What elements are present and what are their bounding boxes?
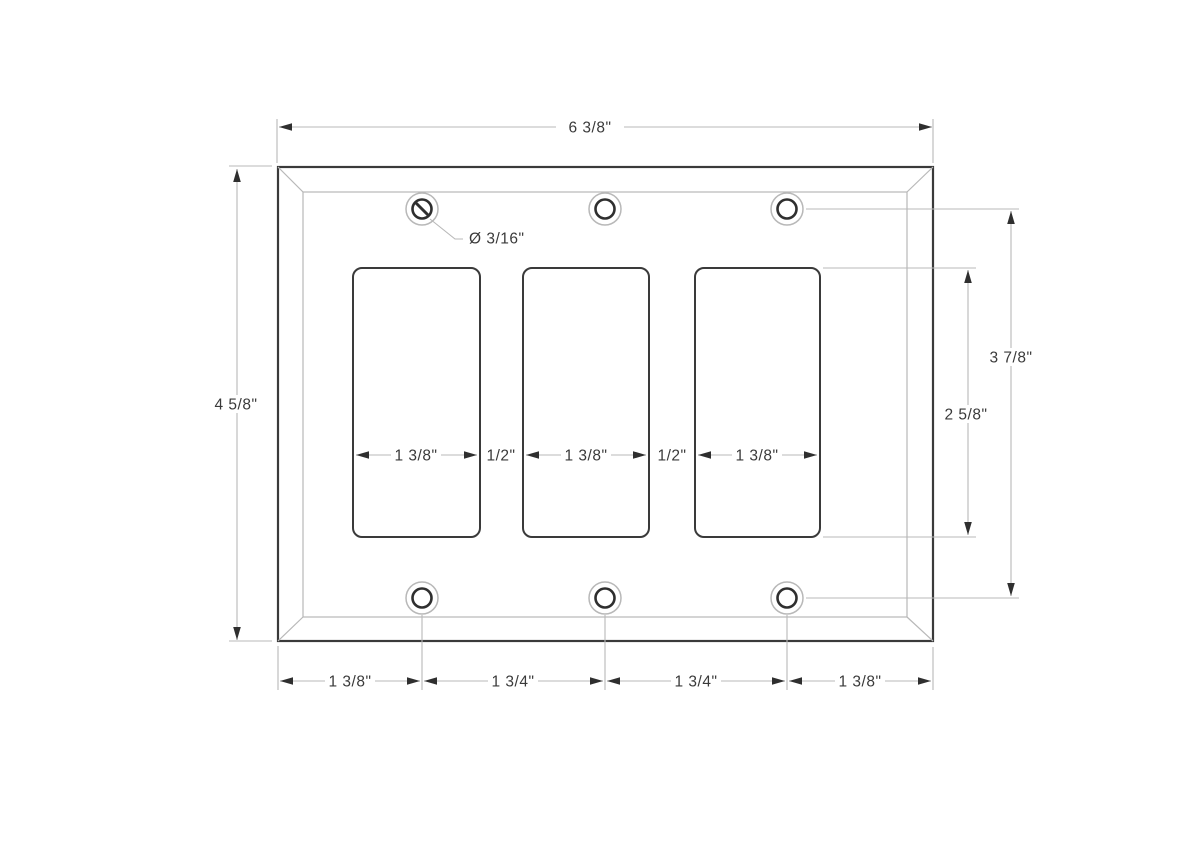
drawing-canvas: 6 3/8" 4 5/8" 3 7/8" 2 5/8" <box>0 0 1200 855</box>
label-screw-span-height: 3 7/8" <box>990 350 1033 367</box>
label-overall-height: 4 5/8" <box>215 397 258 414</box>
label-bottom-spacing-2: 1 3/4" <box>492 674 535 691</box>
dim-overall-width: 6 3/8" <box>277 118 933 163</box>
label-bottom-spacing-1: 1 3/8" <box>329 674 372 691</box>
dim-opening-gap-2: 1/2" <box>657 448 686 465</box>
label-bottom-spacing-4: 1 3/8" <box>839 674 882 691</box>
label-opening-width-1: 1 3/8" <box>395 448 438 465</box>
dim-overall-height: 4 5/8" <box>207 166 272 641</box>
label-overall-width: 6 3/8" <box>569 120 612 137</box>
label-opening-gap-1: 1/2" <box>486 448 515 465</box>
screw-hole-top-left <box>406 193 438 225</box>
label-opening-gap-2: 1/2" <box>657 448 686 465</box>
label-bottom-spacing-3: 1 3/4" <box>675 674 718 691</box>
rocker-opening-1 <box>353 268 480 537</box>
label-opening-width-2: 1 3/8" <box>565 448 608 465</box>
screw-hole-bottom-center <box>589 582 621 614</box>
label-opening-height: 2 5/8" <box>945 407 988 424</box>
wall-plate-technical-drawing: 6 3/8" 4 5/8" 3 7/8" 2 5/8" <box>0 0 1200 855</box>
dim-opening-gap-1: 1/2" <box>486 448 515 465</box>
screw-hole-top-center <box>589 193 621 225</box>
rocker-opening-3 <box>695 268 820 537</box>
label-screw-hole-diameter: Ø 3/16" <box>469 231 525 248</box>
screw-hole-bottom-left <box>406 582 438 614</box>
screw-hole-top-right <box>771 193 803 225</box>
screw-hole-bottom-right <box>771 582 803 614</box>
label-opening-width-3: 1 3/8" <box>736 448 779 465</box>
rocker-opening-2 <box>523 268 649 537</box>
